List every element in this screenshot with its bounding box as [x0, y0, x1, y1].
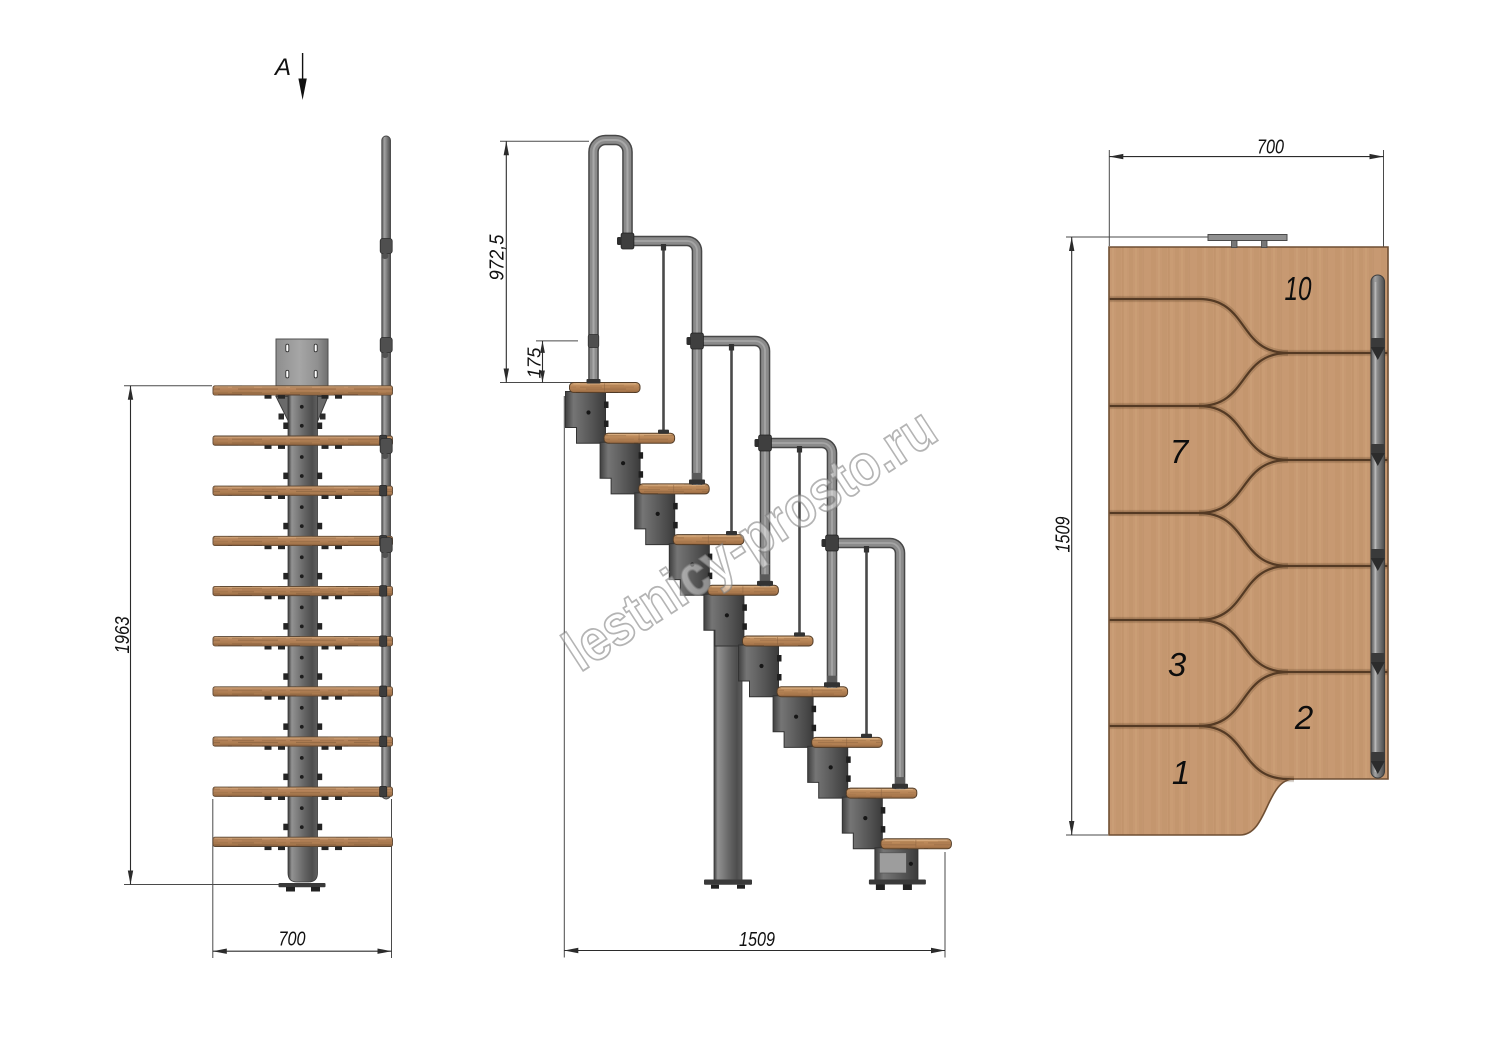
svg-text:3: 3: [1168, 646, 1187, 683]
svg-text:A: A: [273, 54, 291, 81]
svg-text:700: 700: [1257, 137, 1284, 159]
svg-text:972,5: 972,5: [487, 234, 509, 281]
svg-text:1: 1: [1172, 754, 1190, 791]
svg-text:2: 2: [1294, 699, 1313, 736]
svg-text:700: 700: [279, 928, 306, 950]
svg-text:175: 175: [525, 346, 545, 378]
svg-text:1963: 1963: [112, 617, 134, 654]
svg-text:7: 7: [1170, 433, 1190, 470]
svg-text:1509: 1509: [739, 929, 775, 951]
svg-text:1509: 1509: [1053, 517, 1075, 553]
svg-text:10: 10: [1285, 270, 1312, 307]
